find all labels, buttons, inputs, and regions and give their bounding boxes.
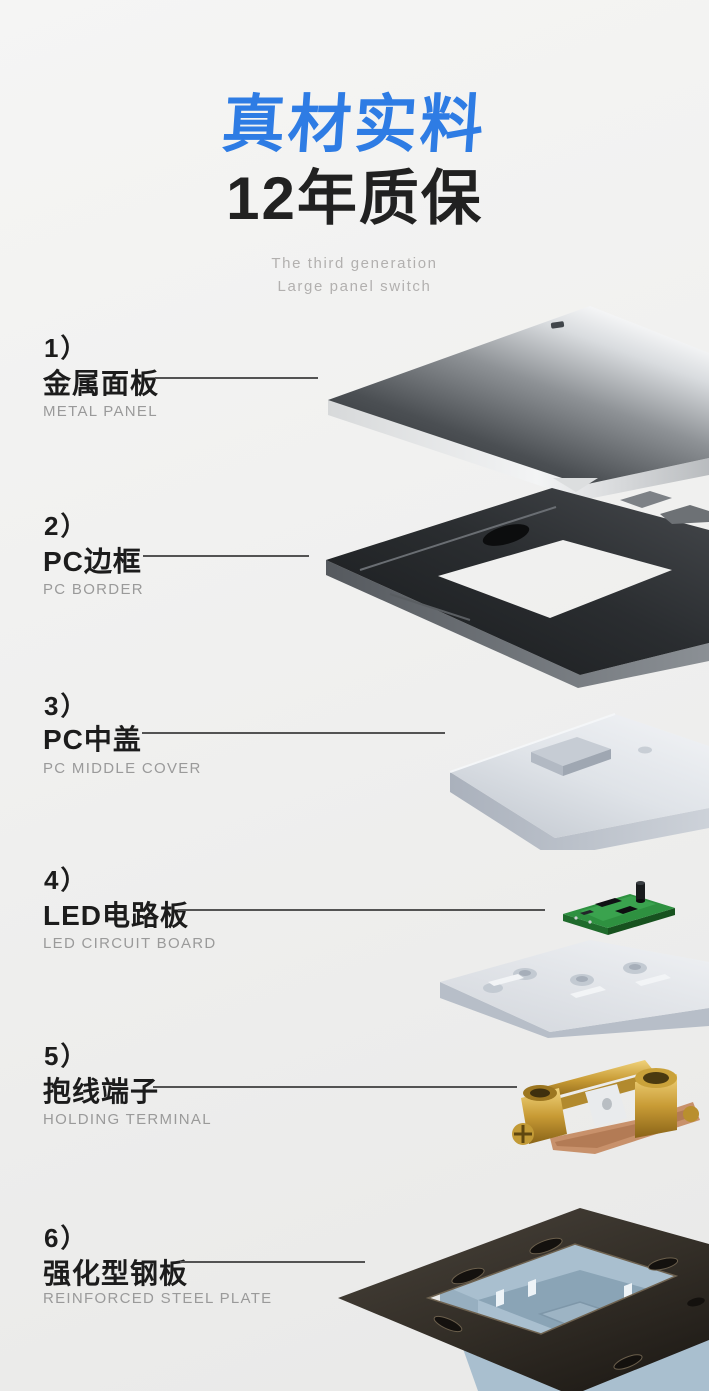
connector-line: [153, 1086, 517, 1088]
part-caption-en: LED CIRCUIT BOARD: [43, 935, 217, 952]
tagline-line-1: The third generation: [0, 255, 709, 272]
part-index: 5）: [44, 1036, 88, 1073]
part-index: 1）: [44, 328, 88, 365]
pcb: [563, 881, 675, 935]
connector-line: [143, 555, 309, 557]
connector-line: [155, 377, 318, 379]
holding-terminal-illustration: [495, 1030, 709, 1170]
page-subtitle: 12年质保: [0, 150, 709, 237]
part-name-cn: LED电路板: [43, 894, 189, 934]
part-caption-en: HOLDING TERMINAL: [43, 1111, 212, 1128]
product-infographic: 真材实料 12年质保 The third generation Large pa…: [0, 0, 709, 1391]
part-caption-en: PC MIDDLE COVER: [43, 760, 202, 777]
part-caption-en: METAL PANEL: [43, 403, 158, 420]
panel-rim-sliver: [553, 478, 598, 492]
part-caption-en: REINFORCED STEEL PLATE: [43, 1290, 272, 1307]
part-name-cn: 抱线端子: [43, 1070, 159, 1110]
pc-middle-cover-illustration: [435, 700, 709, 850]
part-name-cn: 金属面板: [43, 362, 159, 402]
part-index: 4）: [44, 860, 88, 897]
part-name-cn: 强化型钢板: [43, 1252, 188, 1292]
part-index: 6）: [44, 1218, 88, 1255]
part-name-cn: PC边框: [43, 540, 142, 580]
reinforced-steel-plate-illustration: [328, 1192, 709, 1391]
tagline-line-2: Large panel switch: [0, 278, 709, 295]
part-name-cn: PC中盖: [43, 718, 142, 758]
part-index: 2）: [44, 506, 88, 543]
pc-border-frame-illustration: [320, 478, 709, 688]
connector-line: [142, 732, 445, 734]
phillips-screw: [512, 1123, 534, 1145]
part-caption-en: PC BORDER: [43, 581, 144, 598]
led-circuit-board-illustration: [430, 880, 709, 1038]
led-lamp: [636, 883, 645, 901]
